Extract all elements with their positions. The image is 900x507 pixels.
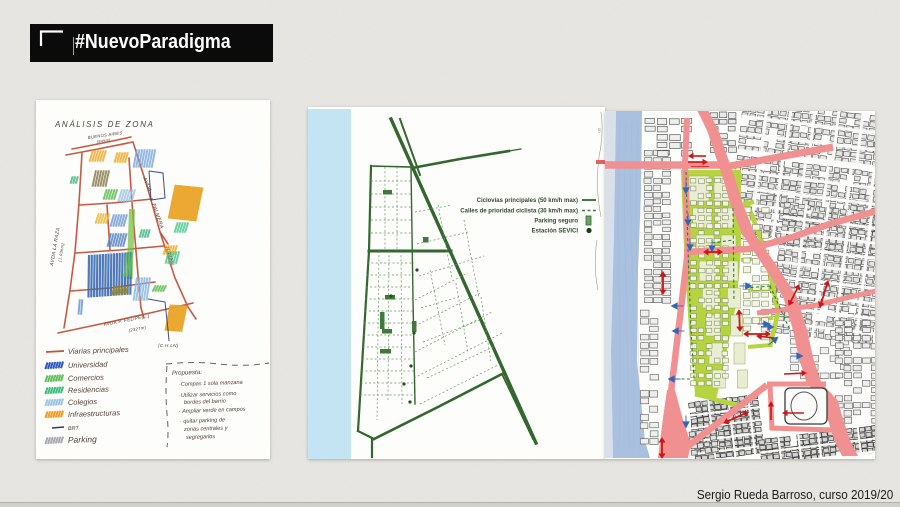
svg-text:(C.H.LN): (C.H.LN) <box>158 343 179 348</box>
svg-text:Calles de prioridad ciclista (: Calles de prioridad ciclista (30 km/h ma… <box>460 209 578 215</box>
svg-text:AVDA: AVDA <box>141 176 153 193</box>
svg-text:Residencias: Residencias <box>68 385 109 395</box>
svg-text:Propuesta:: Propuesta: <box>172 369 202 377</box>
svg-text:·Utilizar servicios como: ·Utilizar servicios como <box>179 391 237 399</box>
svg-text:ANÁLISIS DE ZONA: ANÁLISIS DE ZONA <box>54 120 154 129</box>
svg-text:Parking seguro: Parking seguro <box>534 219 578 225</box>
svg-text:Ciclovías principales (50 km/h: Ciclovías principales (50 km/h max) <box>477 198 578 204</box>
svg-text:· quitar parking de: · quitar parking de <box>180 417 225 425</box>
svg-text:Comercios: Comercios <box>68 373 104 383</box>
svg-text:Universidad: Universidad <box>68 360 109 370</box>
svg-text:(2327m): (2327m) <box>128 325 147 333</box>
svg-text:Viarias principales: Viarias principales <box>68 345 129 356</box>
svg-text:bordes del barrio: bordes del barrio <box>184 399 226 406</box>
svg-text:PALMERA: PALMERA <box>150 203 164 230</box>
svg-text:Estación SEVICI: Estación SEVICI <box>532 229 579 235</box>
svg-text:zonas centrales y: zonas centrales y <box>183 425 229 433</box>
svg-text:Infraestructuras: Infraestructuras <box>68 408 121 419</box>
svg-text:· Ampliar verde en campos: · Ampliar verde en campos <box>179 407 246 415</box>
svg-text:segregarlos: segregarlos <box>186 434 216 441</box>
svg-text:Colegios: Colegios <box>68 397 98 407</box>
svg-text:00: 00 <box>597 128 602 133</box>
svg-text:BRT: BRT <box>68 426 80 432</box>
svg-text:·Compas 1 sola manzana: ·Compas 1 sola manzana <box>179 380 243 388</box>
svg-text:Parking: Parking <box>68 434 97 445</box>
